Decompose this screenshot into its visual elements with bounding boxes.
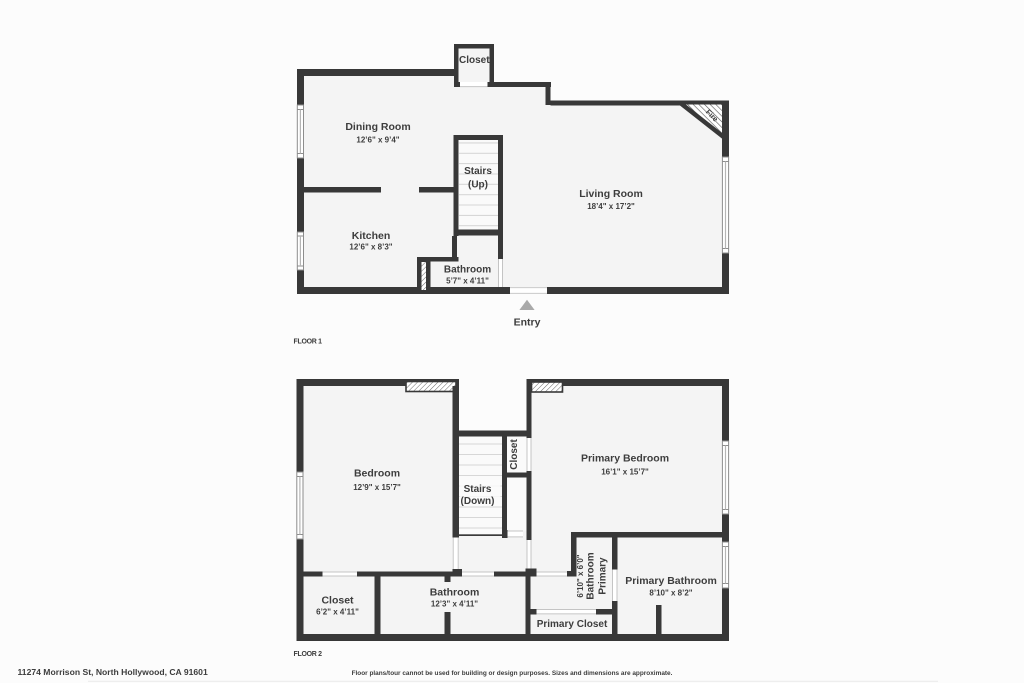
svg-text:Closet: Closet — [459, 55, 490, 66]
svg-text:Dining Room: Dining Room — [345, 121, 410, 133]
svg-text:Bedroom: Bedroom — [354, 468, 400, 480]
svg-text:12’6" x 8’3": 12’6" x 8’3" — [349, 242, 392, 251]
svg-text:12’3" x 4’11": 12’3" x 4’11" — [431, 599, 478, 608]
svg-text:8’10" x 8’2": 8’10" x 8’2" — [649, 588, 692, 597]
svg-text:Bathroom: Bathroom — [444, 265, 491, 276]
svg-text:11274 Morrison St, North Holly: 11274 Morrison St, North Hollywood, CA 9… — [18, 667, 208, 677]
svg-text:FLOOR 1: FLOOR 1 — [294, 339, 323, 346]
svg-text:Floor plans/tour cannot be use: Floor plans/tour cannot be used for buil… — [352, 670, 673, 677]
svg-text:(Down): (Down) — [461, 496, 495, 507]
svg-text:6’2" x 4’11": 6’2" x 4’11" — [316, 607, 359, 616]
svg-text:Stairs: Stairs — [464, 484, 492, 495]
svg-text:Primary: Primary — [598, 557, 609, 595]
svg-text:16’1" x 15’7": 16’1" x 15’7" — [601, 467, 649, 476]
svg-text:18’4" x 17’2": 18’4" x 17’2" — [587, 202, 635, 211]
svg-text:Stairs: Stairs — [464, 166, 492, 177]
svg-text:Entry: Entry — [514, 316, 541, 328]
svg-text:Bathroom: Bathroom — [586, 552, 597, 599]
svg-text:Primary Bedroom: Primary Bedroom — [581, 453, 669, 465]
svg-text:Primary Bathroom: Primary Bathroom — [625, 575, 717, 587]
svg-text:Kitchen: Kitchen — [352, 230, 391, 242]
svg-text:FLOOR 2: FLOOR 2 — [294, 651, 323, 658]
svg-text:6’10" x 6’0": 6’10" x 6’0" — [576, 554, 585, 597]
svg-text:12’9" x 15’7": 12’9" x 15’7" — [353, 483, 401, 492]
svg-text:Closet: Closet — [509, 439, 520, 470]
svg-text:(Up): (Up) — [468, 180, 488, 191]
svg-text:12’6" x 9’4": 12’6" x 9’4" — [356, 135, 399, 144]
svg-text:Living Room: Living Room — [579, 188, 643, 200]
svg-text:Bathroom: Bathroom — [430, 587, 480, 599]
svg-text:Closet: Closet — [321, 595, 354, 607]
svg-text:5’7" x 4’11": 5’7" x 4’11" — [446, 276, 489, 285]
svg-text:Primary Closet: Primary Closet — [537, 619, 608, 630]
